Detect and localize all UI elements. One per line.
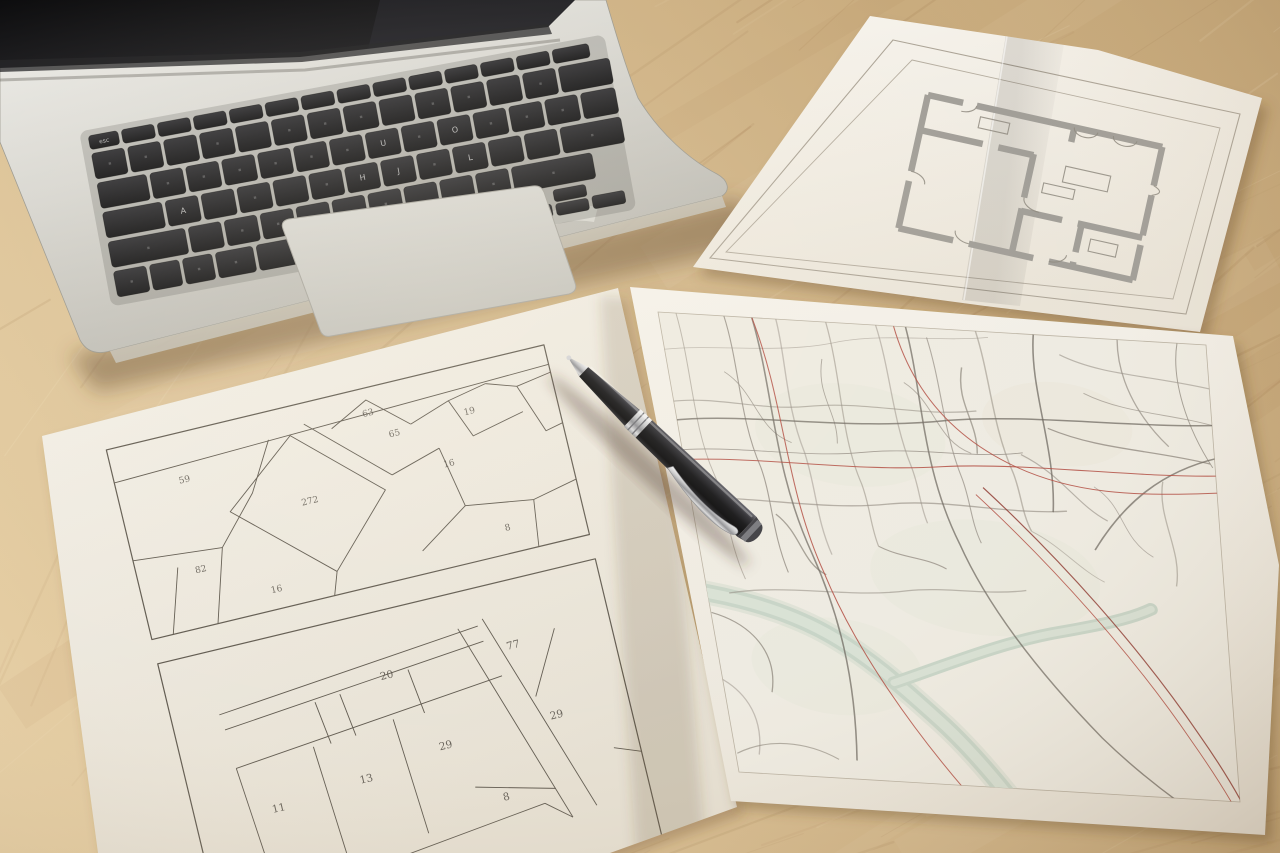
scene-photo: escUOAHJL 596365191627282168207729291311… (0, 0, 1280, 853)
vignette (0, 0, 1280, 853)
desk-scene: escUOAHJL 596365191627282168207729291311… (0, 0, 1280, 853)
